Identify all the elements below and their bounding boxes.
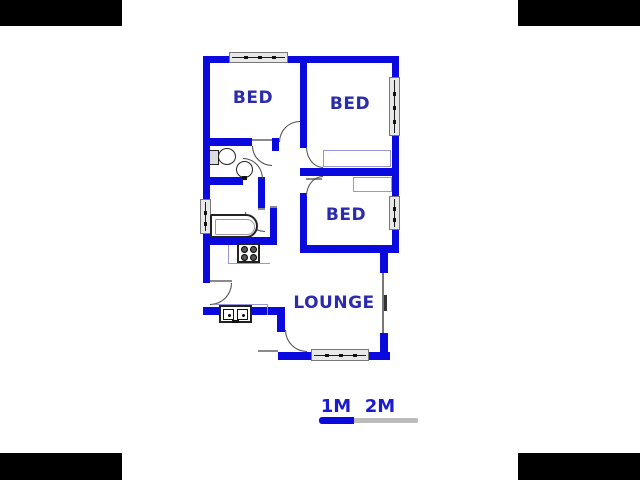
stove-burner	[241, 246, 248, 253]
wall-lounge-bottom-left	[278, 352, 314, 360]
kitchen-counter-line	[228, 263, 270, 264]
closet-bed2-outline	[323, 150, 391, 167]
wall-wc-right	[258, 177, 265, 210]
wall-bed1-bed2-divider	[300, 63, 307, 148]
wc-wall-cap	[258, 208, 265, 210]
window-tick	[353, 354, 357, 357]
sink-drain	[228, 314, 231, 317]
window-tick	[393, 207, 396, 211]
kitchen-counter-line	[228, 245, 229, 263]
window-tick	[204, 222, 207, 226]
basin-tap	[242, 176, 247, 180]
window-tick	[204, 211, 207, 215]
room-label-bed3: BED	[316, 205, 376, 225]
window-tick	[258, 56, 262, 59]
room-label-bed1: BED	[223, 88, 283, 108]
room-label-lounge: LOUNGE	[292, 293, 376, 313]
kitchen-counter-line	[267, 305, 268, 315]
window-lounge-bottom	[311, 349, 369, 361]
wall-bed3-bottom	[300, 245, 399, 253]
wall-hall-lower	[300, 193, 307, 253]
stove-burner	[250, 246, 257, 253]
closet-bed3-outline	[353, 177, 392, 192]
sink-basin-left	[223, 309, 234, 320]
sink-drain	[242, 314, 245, 317]
scale-label-1m: 1M	[314, 397, 358, 417]
wall-bathroom-top	[203, 138, 252, 146]
wall-hall-stub	[272, 138, 279, 151]
sink-basin-right	[237, 309, 248, 320]
glazed-opening-pane	[384, 295, 387, 311]
door-arc-bed2	[306, 147, 323, 168]
window-tick	[244, 56, 248, 59]
scale-bar-segment-blue	[319, 417, 354, 424]
bathroom-door-header	[252, 139, 272, 141]
bathtub-inner	[215, 219, 255, 235]
window-tick	[339, 354, 343, 357]
window-glass-line	[205, 202, 206, 231]
stove-burner	[241, 254, 248, 261]
window-tick	[272, 56, 276, 59]
wall-lounge-right-lower	[380, 333, 388, 354]
window-tick	[325, 354, 329, 357]
stove	[237, 243, 260, 263]
bathtub	[210, 214, 258, 238]
toilet-bowl	[218, 148, 236, 165]
lounge-threshold-line	[258, 350, 278, 352]
stove-burner	[250, 254, 257, 261]
kitchen-sink	[219, 305, 252, 323]
bath-wall-cap	[270, 206, 277, 208]
wall-right-b	[392, 133, 399, 197]
door-arc-entry	[210, 283, 232, 305]
scale-label-2m: 2M	[358, 397, 402, 417]
entry-door-header	[210, 280, 232, 282]
wall-lounge-bottom-right	[368, 352, 390, 360]
window-bed2-right	[389, 77, 400, 136]
window-tick	[393, 92, 396, 96]
door-arc-bed1	[279, 121, 300, 142]
scale-bar: 1M 2M	[300, 390, 440, 435]
room-label-bed2: BED	[320, 94, 380, 114]
wall-bed2-bed3-divider	[300, 168, 399, 176]
wall-lounge-right-upper	[380, 253, 388, 273]
window-tick	[393, 218, 396, 222]
door-arc-lounge	[285, 330, 307, 352]
window-bed1-top	[229, 52, 288, 63]
wall-kitchen-step	[277, 313, 285, 332]
window-bed3-right	[389, 196, 400, 230]
wall-bathroom-bottom	[203, 177, 243, 185]
window-tick	[393, 120, 396, 124]
window-tick	[393, 106, 396, 110]
scale-bar-segment-gray	[354, 418, 418, 423]
window-glass-line	[394, 199, 395, 227]
screenshot-root: BED BED BED LOUNGE 1M 2M	[0, 0, 640, 480]
sink-tap	[232, 320, 239, 323]
